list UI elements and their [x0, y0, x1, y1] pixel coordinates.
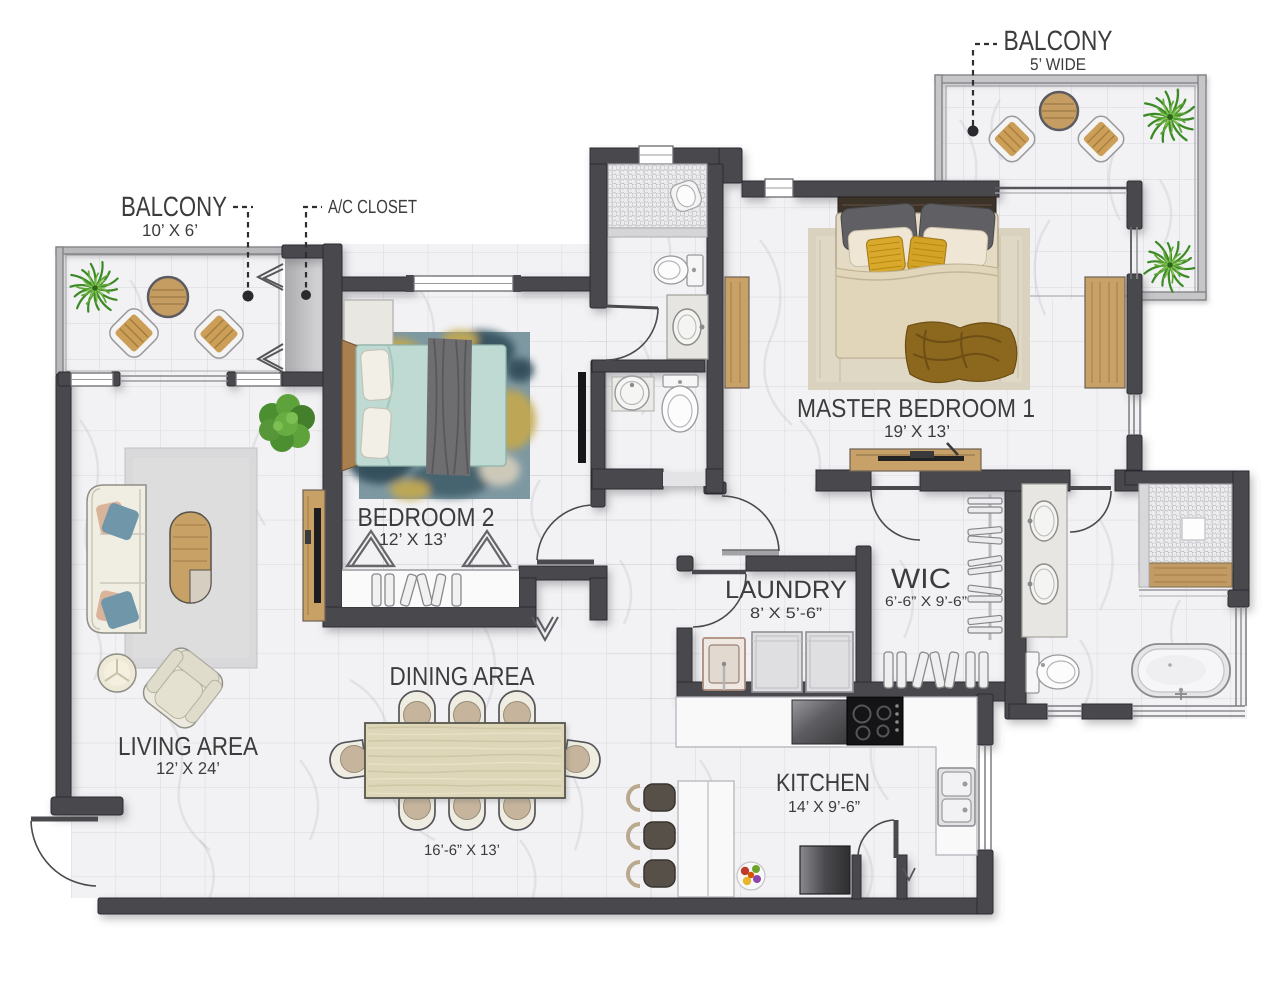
svg-text:LAUNDRY: LAUNDRY [725, 576, 847, 604]
svg-text:8’ X 5’-6”: 8’ X 5’-6” [750, 605, 822, 622]
svg-text:BEDROOM 2: BEDROOM 2 [358, 502, 495, 532]
svg-text:KITCHEN: KITCHEN [776, 769, 870, 797]
svg-text:DINING AREA: DINING AREA [390, 661, 536, 691]
svg-text:12’ X 24’: 12’ X 24’ [156, 759, 220, 778]
svg-text:14’ X 9’-6”: 14’ X 9’-6” [788, 799, 860, 816]
svg-text:WIC: WIC [891, 563, 951, 594]
svg-text:BALCONY: BALCONY [1004, 25, 1113, 56]
svg-text:12’ X 13’: 12’ X 13’ [379, 530, 447, 549]
svg-text:A/C CLOSET: A/C CLOSET [328, 197, 417, 218]
svg-text:5’ WIDE: 5’ WIDE [1030, 55, 1086, 74]
svg-text:6’-6” X 9’-6”: 6’-6” X 9’-6” [885, 593, 967, 609]
svg-text:BALCONY: BALCONY [121, 191, 227, 222]
svg-text:16’-6” X 13’: 16’-6” X 13’ [424, 842, 500, 859]
svg-text:19’ X 13’: 19’ X 13’ [884, 422, 950, 441]
svg-text:10’ X 6’: 10’ X 6’ [142, 221, 198, 240]
svg-text:MASTER BEDROOM 1: MASTER BEDROOM 1 [797, 393, 1035, 423]
svg-text:LIVING AREA: LIVING AREA [118, 731, 259, 761]
